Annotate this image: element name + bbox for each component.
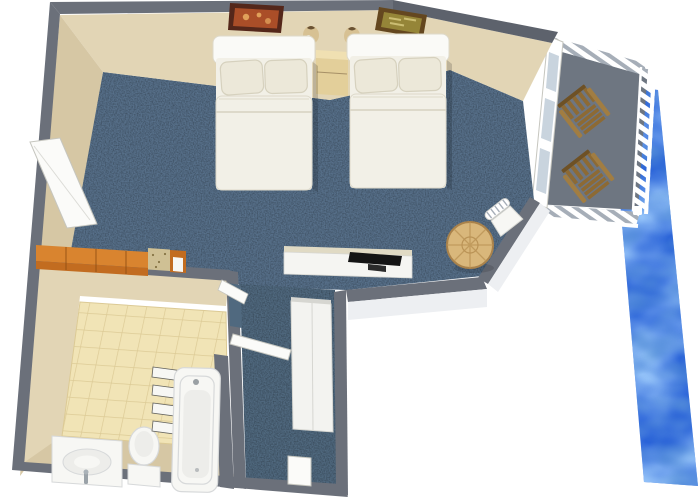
picture-motif — [257, 13, 262, 18]
tub-basin — [182, 390, 211, 479]
closet — [291, 297, 333, 432]
granite-speck — [164, 253, 166, 255]
granite-speck — [155, 266, 157, 268]
picture-art — [233, 8, 279, 29]
toilet-tank — [128, 464, 160, 487]
floorplan-render — [0, 0, 700, 500]
sink-vanity — [52, 436, 122, 487]
stone-counter — [148, 248, 170, 271]
bathtub — [171, 367, 220, 492]
tv-desk — [284, 246, 412, 278]
entry-step — [288, 456, 311, 486]
tub-faucet — [193, 379, 199, 385]
sink-basin-inner — [74, 456, 100, 469]
sink-faucet-head — [84, 470, 89, 475]
nightstand-body — [316, 58, 348, 96]
picture-motif — [265, 18, 271, 24]
toilet-seat — [135, 431, 154, 457]
dresser-end-panel — [173, 257, 183, 272]
granite-speck — [152, 254, 154, 256]
toilet — [128, 427, 160, 487]
nightstand — [316, 50, 348, 96]
hall-east-wall — [334, 290, 348, 496]
railing-post — [633, 206, 642, 215]
floorplan-svg — [0, 0, 700, 500]
double-bed-2 — [347, 34, 452, 190]
double-bed-1 — [213, 36, 318, 192]
picture-motif — [243, 14, 249, 20]
wall-picture-1 — [228, 3, 284, 33]
tub-drain — [195, 468, 199, 472]
railing-post — [645, 60, 654, 69]
granite-speck — [158, 261, 160, 263]
